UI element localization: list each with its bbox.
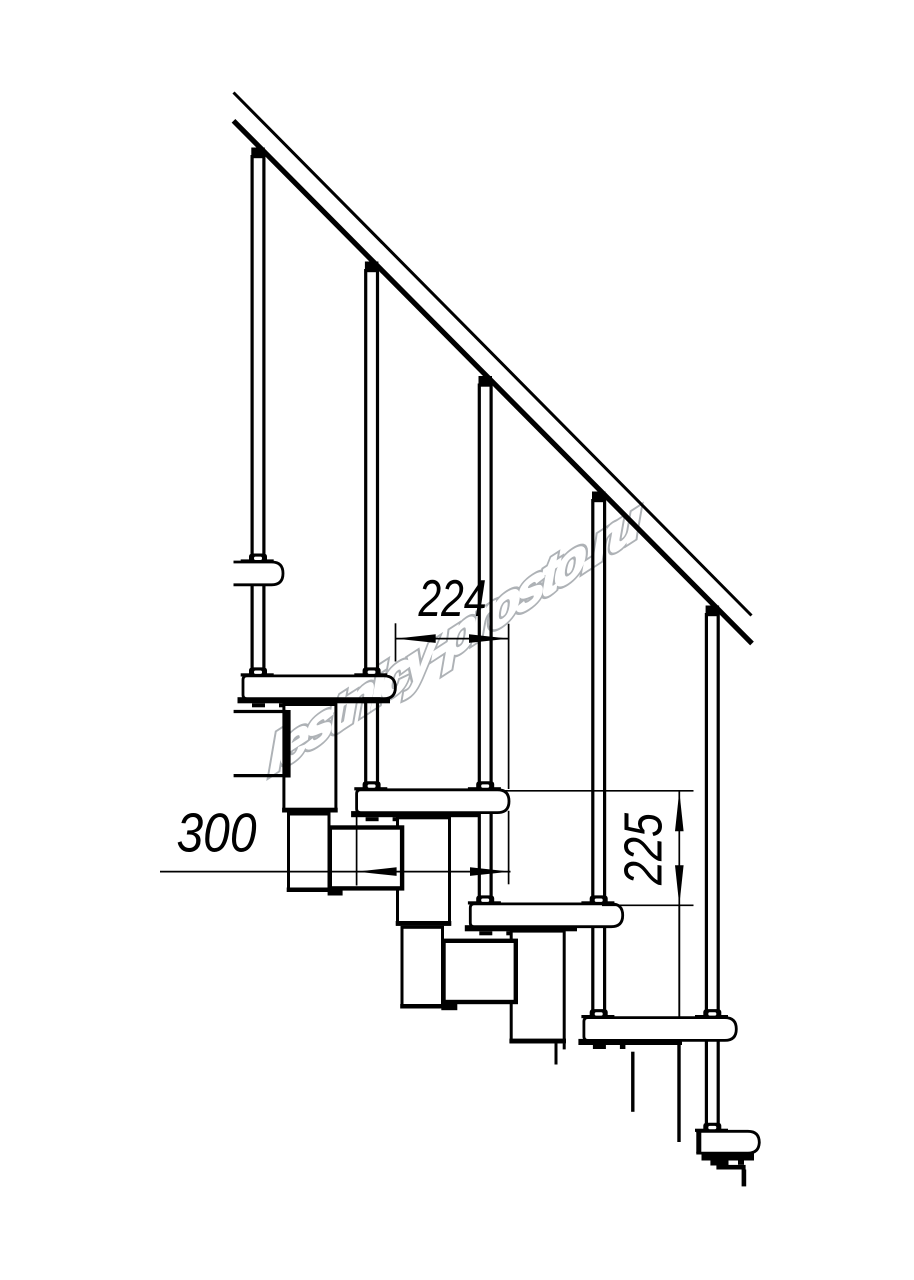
svg-text:224: 224 bbox=[418, 570, 487, 628]
svg-text:225: 225 bbox=[614, 813, 673, 886]
svg-text:300: 300 bbox=[177, 802, 257, 864]
